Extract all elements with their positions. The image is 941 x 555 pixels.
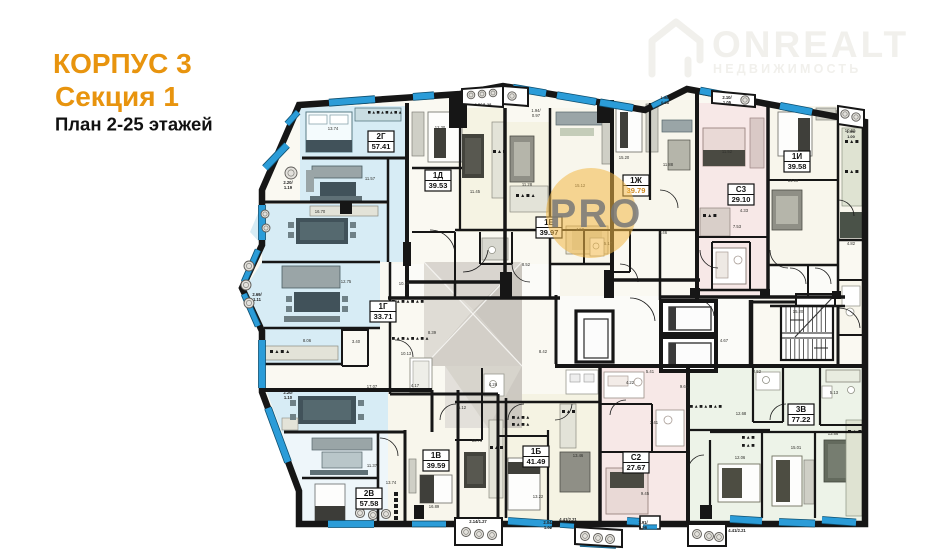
svg-text:4.33: 4.33 (740, 208, 749, 213)
svg-text:КОРПУС 3: КОРПУС 3 (53, 48, 192, 79)
svg-text:9.45: 9.45 (641, 491, 650, 496)
svg-text:3В: 3В (796, 405, 806, 414)
svg-text:15.20: 15.20 (619, 155, 630, 160)
svg-text:НЕДВИЖИМОСТЬ: НЕДВИЖИМОСТЬ (713, 62, 861, 76)
svg-text:39.58: 39.58 (788, 162, 807, 171)
svg-text:4.82: 4.82 (847, 241, 856, 246)
svg-text:13.74: 13.74 (328, 126, 339, 131)
svg-text:0.96: 0.96 (639, 525, 648, 530)
svg-text:6.46: 6.46 (659, 230, 668, 235)
svg-text:1.00: 1.00 (847, 134, 856, 139)
svg-text:5.41: 5.41 (646, 369, 655, 374)
svg-text:41.49: 41.49 (527, 457, 546, 466)
svg-text:4.41/2.21: 4.41/2.21 (559, 517, 577, 522)
svg-text:7.53: 7.53 (733, 224, 742, 229)
svg-text:5.13: 5.13 (830, 390, 839, 395)
svg-text:1И: 1И (792, 152, 802, 161)
svg-text:6.12: 6.12 (458, 405, 467, 410)
svg-text:9.61: 9.61 (680, 384, 689, 389)
svg-text:15.20: 15.20 (793, 309, 804, 314)
svg-text:57.41: 57.41 (372, 142, 391, 151)
svg-text:16.89: 16.89 (429, 504, 440, 509)
svg-text:1.05: 1.05 (723, 100, 732, 105)
svg-text:13.86: 13.86 (828, 431, 839, 436)
svg-text:ONREALT: ONREALT (712, 24, 909, 65)
svg-text:13.22: 13.22 (533, 494, 544, 499)
svg-text:1.02: 1.02 (544, 525, 553, 530)
svg-text:11.37: 11.37 (367, 463, 378, 468)
svg-text:2В: 2В (364, 489, 374, 498)
svg-text:39.59: 39.59 (427, 461, 446, 470)
svg-text:4.41/2.21: 4.41/2.21 (728, 528, 746, 533)
svg-text:4.17: 4.17 (411, 383, 420, 388)
svg-text:13.46: 13.46 (573, 453, 584, 458)
svg-text:4.67: 4.67 (720, 338, 729, 343)
svg-text:План 2-25 этажей: План 2-25 этажей (55, 114, 213, 135)
svg-text:1Ж: 1Ж (630, 176, 642, 185)
svg-text:1.19: 1.19 (284, 185, 293, 190)
svg-text:1.10: 1.10 (284, 395, 293, 400)
svg-text:3.41: 3.41 (650, 420, 659, 425)
svg-text:11.88: 11.88 (663, 162, 674, 167)
svg-text:2.56/1.28: 2.56/1.28 (475, 102, 492, 107)
svg-text:11.28: 11.28 (522, 182, 533, 187)
svg-text:С3: С3 (736, 185, 747, 194)
svg-text:17.07: 17.07 (367, 384, 378, 389)
svg-text:4.26: 4.26 (489, 382, 498, 387)
svg-text:11.52: 11.52 (722, 149, 733, 154)
svg-text:С2: С2 (631, 453, 642, 462)
svg-text:8.52: 8.52 (522, 262, 531, 267)
svg-text:0.98: 0.98 (661, 100, 670, 105)
svg-text:10.62: 10.62 (845, 128, 856, 133)
svg-text:8.06: 8.06 (303, 338, 312, 343)
svg-text:1Г: 1Г (379, 302, 388, 311)
svg-text:10.13: 10.13 (401, 351, 412, 356)
svg-text:PRO: PRO (550, 192, 643, 236)
svg-text:11.45: 11.45 (470, 189, 481, 194)
svg-text:10.75: 10.75 (472, 438, 483, 443)
svg-text:57.58: 57.58 (360, 499, 379, 508)
svg-text:14.99: 14.99 (788, 178, 799, 183)
svg-text:10.16: 10.16 (399, 281, 410, 286)
svg-text:8.42: 8.42 (539, 349, 548, 354)
svg-text:4.22: 4.22 (626, 380, 635, 385)
svg-text:12.06: 12.06 (735, 455, 746, 460)
svg-text:15.01: 15.01 (791, 445, 802, 450)
svg-text:Секция 1: Секция 1 (55, 81, 179, 112)
svg-text:3.40: 3.40 (352, 339, 361, 344)
svg-text:16.70: 16.70 (315, 209, 326, 214)
svg-text:8.39: 8.39 (428, 330, 437, 335)
svg-text:12.75: 12.75 (341, 279, 352, 284)
svg-text:29.10: 29.10 (732, 195, 751, 204)
svg-text:1Б: 1Б (531, 447, 541, 456)
svg-text:2.52: 2.52 (753, 369, 762, 374)
svg-text:12.30: 12.30 (435, 125, 446, 130)
svg-text:12.68: 12.68 (736, 411, 747, 416)
svg-text:27.67: 27.67 (627, 463, 646, 472)
svg-text:39.53: 39.53 (429, 181, 448, 190)
svg-text:13.74: 13.74 (386, 480, 397, 485)
svg-text:0.97: 0.97 (532, 113, 541, 118)
svg-text:1Д: 1Д (433, 171, 443, 180)
svg-text:2.14/1.27: 2.14/1.27 (469, 519, 487, 524)
svg-text:1В: 1В (431, 451, 441, 460)
svg-text:1.11: 1.11 (253, 297, 262, 302)
svg-text:11.57: 11.57 (365, 176, 376, 181)
svg-text:33.71: 33.71 (374, 312, 393, 321)
svg-text:2Г: 2Г (377, 132, 386, 141)
svg-text:77.22: 77.22 (792, 415, 811, 424)
